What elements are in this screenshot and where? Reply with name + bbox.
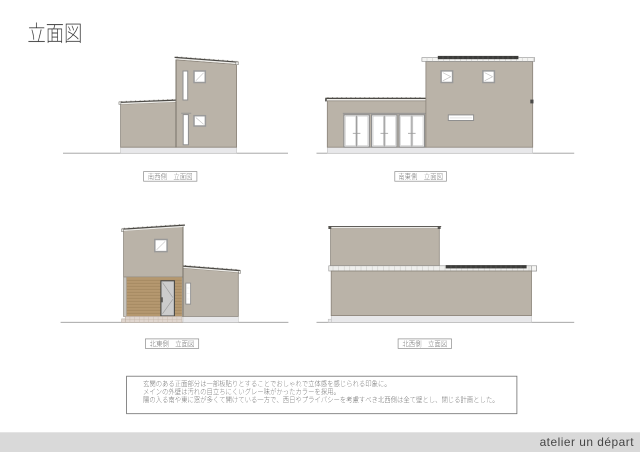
svg-text:atelier un départ: atelier un départ (540, 435, 635, 449)
